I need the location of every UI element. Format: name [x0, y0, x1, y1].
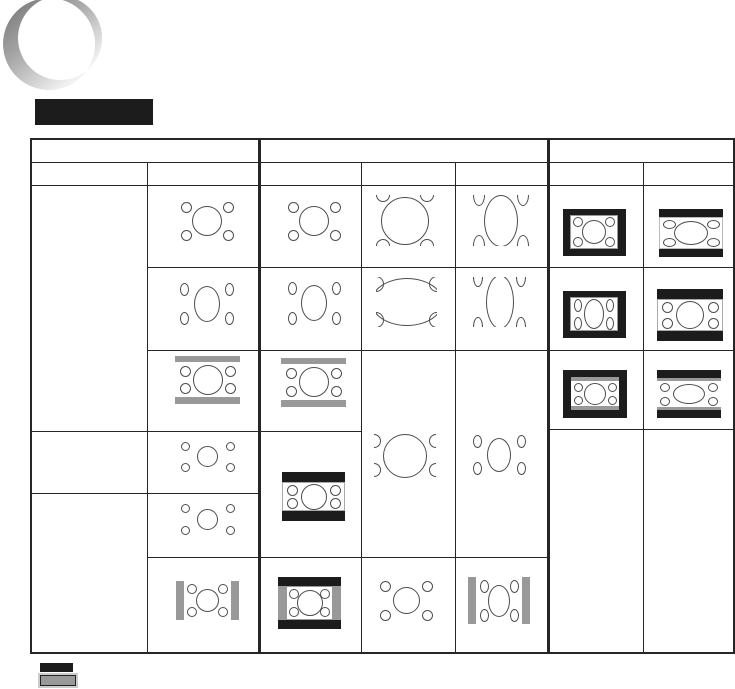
corner-circle	[181, 230, 192, 241]
corner-circle	[707, 238, 720, 247]
corner-circle	[662, 318, 673, 329]
corner-circle	[516, 277, 526, 287]
screen-diagram-e3	[563, 370, 627, 418]
corner-circle	[320, 589, 330, 599]
corner-circle	[606, 317, 614, 330]
center-circle	[674, 221, 708, 245]
corner-circle	[420, 239, 434, 246]
corner-circle	[608, 383, 617, 392]
pattern-area-d2	[469, 277, 530, 327]
center-circle	[301, 484, 327, 510]
corner-circle	[289, 589, 299, 599]
corner-circle	[420, 195, 434, 202]
screen-diagram-b6	[278, 577, 341, 629]
corner-circle	[288, 230, 299, 241]
corner-circle	[225, 283, 234, 296]
corner-circle	[223, 230, 234, 241]
corner-circle	[286, 386, 297, 397]
corner-circle	[473, 435, 482, 448]
center-circle	[673, 384, 705, 404]
corner-circle	[480, 609, 489, 622]
screen-diagram-a4	[176, 439, 239, 474]
corner-circle	[330, 230, 341, 241]
pattern-area-f2	[657, 299, 723, 331]
corner-circle	[480, 580, 489, 593]
screen-diagram-b2	[282, 277, 346, 329]
corner-circle	[330, 498, 341, 509]
pattern-area-d6	[476, 577, 522, 624]
corner-circle	[573, 217, 583, 227]
screen-diagram-c3_5	[374, 432, 436, 479]
center-circle	[196, 589, 219, 612]
manual-page	[0, 0, 735, 689]
corner-circle	[660, 383, 670, 392]
corner-circle	[289, 607, 299, 617]
pattern-area-f1	[659, 217, 723, 249]
corner-circle	[473, 235, 485, 246]
center-circle	[194, 286, 220, 322]
corner-circle	[708, 302, 719, 313]
pattern-area-c6	[375, 577, 437, 624]
corner-circle	[663, 238, 676, 247]
legend-black-bar-swatch	[40, 663, 73, 672]
center-circle	[297, 590, 323, 616]
corner-circle	[288, 202, 299, 213]
corner-circle	[707, 220, 720, 229]
corner-circle	[187, 584, 197, 594]
pattern-area-b6	[286, 586, 333, 620]
corner-circle	[574, 396, 583, 405]
corner-circle	[663, 220, 676, 229]
corner-circle	[422, 610, 433, 621]
screen-diagram-d3_5	[468, 431, 530, 478]
pattern-area-a2	[174, 278, 239, 329]
center-circle	[393, 587, 420, 614]
corner-circle	[574, 317, 582, 330]
pattern-area-b3	[281, 364, 346, 400]
center-circle	[488, 585, 510, 617]
corner-circle	[660, 397, 670, 406]
pattern-area-e3	[571, 381, 619, 406]
pattern-area-a6	[184, 581, 231, 620]
corner-circle	[708, 383, 718, 392]
corner-circle	[331, 368, 342, 379]
pattern-area-b2	[282, 277, 346, 329]
center-circle	[193, 365, 223, 395]
corner-circle	[187, 607, 197, 617]
screen-diagram-f2	[657, 289, 723, 341]
screen-diagram-c2	[376, 277, 437, 327]
corner-circle	[226, 442, 235, 451]
corner-circle	[180, 283, 189, 296]
corner-circle	[331, 386, 342, 397]
pattern-area-a5	[176, 501, 239, 537]
corner-circle	[330, 202, 341, 213]
pattern-area-e2	[570, 297, 618, 331]
corner-circle	[429, 434, 436, 448]
center-circle	[484, 195, 518, 246]
corner-circle	[516, 317, 526, 327]
corner-circle	[473, 195, 485, 206]
center-circle	[299, 367, 329, 397]
corner-circle	[287, 498, 298, 509]
corner-circle	[226, 463, 235, 472]
corner-circle	[473, 277, 483, 287]
screen-diagram-b4_5	[282, 472, 345, 521]
corner-circle	[662, 302, 673, 313]
screen-diagram-b3	[281, 358, 346, 407]
corner-circle	[332, 312, 341, 325]
pattern-area-a4	[176, 439, 239, 474]
center-circle	[197, 446, 218, 467]
corner-circle	[608, 396, 617, 405]
corner-circle	[374, 463, 381, 477]
corner-circle	[225, 383, 236, 394]
pattern-area-b4_5	[282, 482, 345, 511]
corner-circle	[374, 434, 381, 448]
screen-diagram-a1	[175, 197, 239, 245]
corner-circle	[574, 383, 583, 392]
center-circle	[197, 509, 218, 530]
center-circle	[487, 438, 511, 472]
screen-diagram-f1	[659, 209, 723, 257]
corner-circle	[422, 581, 433, 592]
screen-diagram-d2	[469, 277, 530, 327]
corner-circle	[180, 366, 191, 377]
pattern-area-e1	[570, 215, 618, 249]
corner-circle	[226, 504, 235, 513]
screen-diagram-c1	[373, 195, 437, 246]
center-circle	[381, 197, 429, 245]
corner-circle	[218, 607, 228, 617]
center-circle	[192, 206, 222, 236]
corner-circle	[376, 195, 390, 202]
corner-circle	[708, 318, 719, 329]
screen-diagram-d6	[468, 577, 530, 624]
screen-diagram-a2	[174, 278, 239, 329]
corner-circle	[225, 312, 234, 325]
corner-circle	[332, 282, 341, 295]
corner-circle	[574, 299, 582, 312]
corner-circle	[320, 607, 330, 617]
pattern-area-d3_5	[468, 431, 530, 478]
screen-diagram-c6	[375, 577, 437, 624]
corner-circle	[605, 217, 615, 227]
pattern-area-f3	[657, 381, 721, 407]
pattern-area-c1	[373, 195, 437, 246]
screen-diagram-a3	[175, 356, 240, 404]
corner-circle	[517, 195, 529, 206]
pattern-area-a1	[175, 197, 239, 245]
corner-circle	[180, 383, 191, 394]
corner-circle	[287, 485, 298, 496]
corner-circle	[429, 312, 437, 327]
corner-circle	[181, 526, 190, 535]
center-circle	[676, 301, 704, 329]
pattern-area-a3	[175, 362, 240, 397]
corner-circle	[517, 435, 526, 448]
screen-diagram-f3	[657, 370, 721, 418]
corner-circle	[429, 463, 436, 477]
corner-circle	[606, 299, 614, 312]
corner-circle	[181, 202, 192, 213]
center-circle	[376, 278, 437, 326]
corner-circle	[517, 235, 529, 246]
corner-circle	[288, 282, 297, 295]
legend-gray-bar-swatch	[40, 675, 76, 686]
corner-circle	[286, 368, 297, 379]
pattern-area-b1	[282, 197, 346, 245]
pattern-area-c2	[376, 277, 437, 327]
mode-table-diagrams	[0, 0, 735, 689]
screen-diagram-e1	[563, 209, 626, 256]
screen-diagram-b1	[282, 197, 346, 245]
screen-diagram-e2	[563, 291, 626, 338]
corner-circle	[376, 239, 390, 246]
corner-circle	[573, 237, 583, 247]
center-circle	[383, 434, 427, 478]
corner-circle	[510, 580, 519, 593]
corner-circle	[181, 504, 190, 513]
center-circle	[582, 220, 606, 244]
screen-diagram-d1	[470, 195, 532, 246]
corner-circle	[181, 442, 190, 451]
corner-circle	[181, 463, 190, 472]
pattern-area-c3_5	[374, 432, 436, 479]
center-circle	[584, 299, 604, 329]
screen-diagram-a5	[176, 501, 239, 537]
center-circle	[301, 285, 327, 321]
corner-circle	[223, 202, 234, 213]
screen-diagram-a6	[176, 581, 239, 620]
corner-circle	[180, 312, 189, 325]
pattern-area-d1	[470, 195, 532, 246]
corner-circle	[517, 462, 526, 475]
corner-circle	[330, 485, 341, 496]
corner-circle	[226, 526, 235, 535]
corner-circle	[708, 397, 718, 406]
corner-circle	[473, 462, 482, 475]
corner-circle	[510, 609, 519, 622]
center-circle	[584, 383, 606, 405]
corner-circle	[218, 584, 228, 594]
corner-circle	[380, 610, 391, 621]
corner-circle	[605, 237, 615, 247]
corner-circle	[288, 312, 297, 325]
corner-circle	[473, 317, 483, 327]
center-circle	[486, 277, 514, 327]
center-circle	[299, 206, 329, 236]
corner-circle	[380, 581, 391, 592]
corner-circle	[225, 366, 236, 377]
